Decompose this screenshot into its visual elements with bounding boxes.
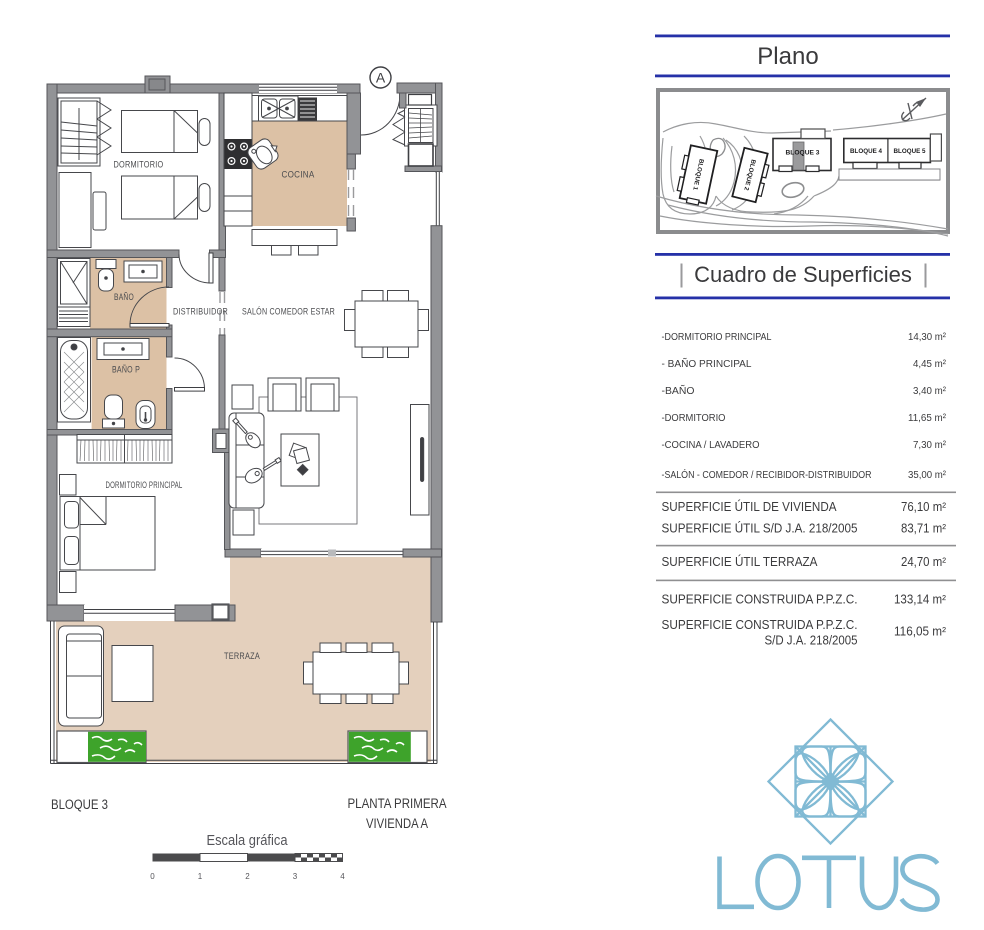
svg-text:7,30 m²: 7,30 m²	[913, 440, 947, 451]
svg-text:4: 4	[340, 872, 345, 881]
svg-text:Cuadro de Superficies: Cuadro de Superficies	[694, 262, 912, 287]
svg-text:BLOQUE 5: BLOQUE 5	[894, 148, 926, 155]
svg-text:-SALÓN - COMEDOR / RECIBIDOR-: -SALÓN - COMEDOR / RECIBIDOR-DISTRIBUIDO…	[662, 468, 872, 481]
svg-text:DORMITORIO PRINCIPAL: DORMITORIO PRINCIPAL	[106, 480, 183, 490]
svg-text:-DORMITORIO: -DORMITORIO	[662, 413, 726, 424]
svg-text:BAÑO: BAÑO	[114, 292, 134, 302]
svg-text:-COCINA / LAVADERO: -COCINA / LAVADERO	[662, 440, 760, 451]
svg-text:14,30 m²: 14,30 m²	[908, 332, 947, 343]
svg-text:VIVIENDA A: VIVIENDA A	[366, 816, 428, 831]
svg-text:DORMITORIO: DORMITORIO	[114, 160, 164, 170]
svg-text:S/D J.A. 218/2005: S/D J.A. 218/2005	[765, 633, 858, 648]
svg-text:COCINA: COCINA	[282, 170, 315, 180]
svg-text:83,71 m²: 83,71 m²	[901, 522, 946, 536]
svg-text:BAÑO P: BAÑO P	[112, 365, 140, 375]
svg-text:TERRAZA: TERRAZA	[224, 651, 260, 661]
svg-text:-BAÑO: -BAÑO	[662, 384, 695, 397]
svg-text:76,10 m²: 76,10 m²	[901, 500, 946, 514]
svg-text:116,05 m²: 116,05 m²	[894, 625, 946, 639]
svg-text:11,65 m²: 11,65 m²	[908, 413, 947, 424]
svg-text:SUPERFICIE ÚTIL TERRAZA: SUPERFICIE ÚTIL TERRAZA	[662, 554, 818, 569]
svg-text:35,00 m²: 35,00 m²	[908, 470, 947, 481]
svg-text:-DORMITORIO PRINCIPAL: -DORMITORIO PRINCIPAL	[662, 332, 772, 343]
svg-text:SUPERFICIE CONSTRUIDA P.P.Z.C.: SUPERFICIE CONSTRUIDA P.P.Z.C.	[662, 617, 858, 632]
svg-text:BLOQUE 3: BLOQUE 3	[51, 797, 108, 812]
svg-text:BLOQUE 4: BLOQUE 4	[850, 148, 882, 155]
svg-text:BLOQUE 3: BLOQUE 3	[786, 150, 820, 157]
svg-text:3: 3	[293, 872, 298, 881]
svg-text:1: 1	[198, 872, 203, 881]
svg-text:SUPERFICIE CONSTRUIDA P.P.Z.C.: SUPERFICIE CONSTRUIDA P.P.Z.C.	[662, 592, 858, 607]
svg-text:Plano: Plano	[757, 43, 818, 70]
svg-text:PLANTA PRIMERA: PLANTA PRIMERA	[348, 796, 447, 811]
svg-text:133,14 m²: 133,14 m²	[894, 593, 946, 607]
svg-text:24,70 m²: 24,70 m²	[901, 555, 946, 569]
svg-text:- BAÑO PRINCIPAL: - BAÑO PRINCIPAL	[662, 357, 752, 370]
svg-text:4,45 m²: 4,45 m²	[913, 359, 947, 370]
svg-text:SALÓN COMEDOR ESTAR: SALÓN COMEDOR ESTAR	[242, 307, 335, 317]
svg-text:DISTRIBUIDOR: DISTRIBUIDOR	[173, 307, 228, 317]
svg-text:SUPERFICIE ÚTIL DE VIVIENDA: SUPERFICIE ÚTIL DE VIVIENDA	[662, 499, 837, 514]
svg-text:A: A	[376, 70, 386, 86]
svg-text:2: 2	[245, 872, 250, 881]
svg-text:3,40 m²: 3,40 m²	[913, 386, 947, 397]
svg-text:0: 0	[150, 872, 155, 881]
svg-text:SUPERFICIE ÚTIL S/D J.A. 218/2: SUPERFICIE ÚTIL S/D J.A. 218/2005	[662, 521, 858, 536]
svg-text:Escala gráfica: Escala gráfica	[207, 832, 289, 849]
